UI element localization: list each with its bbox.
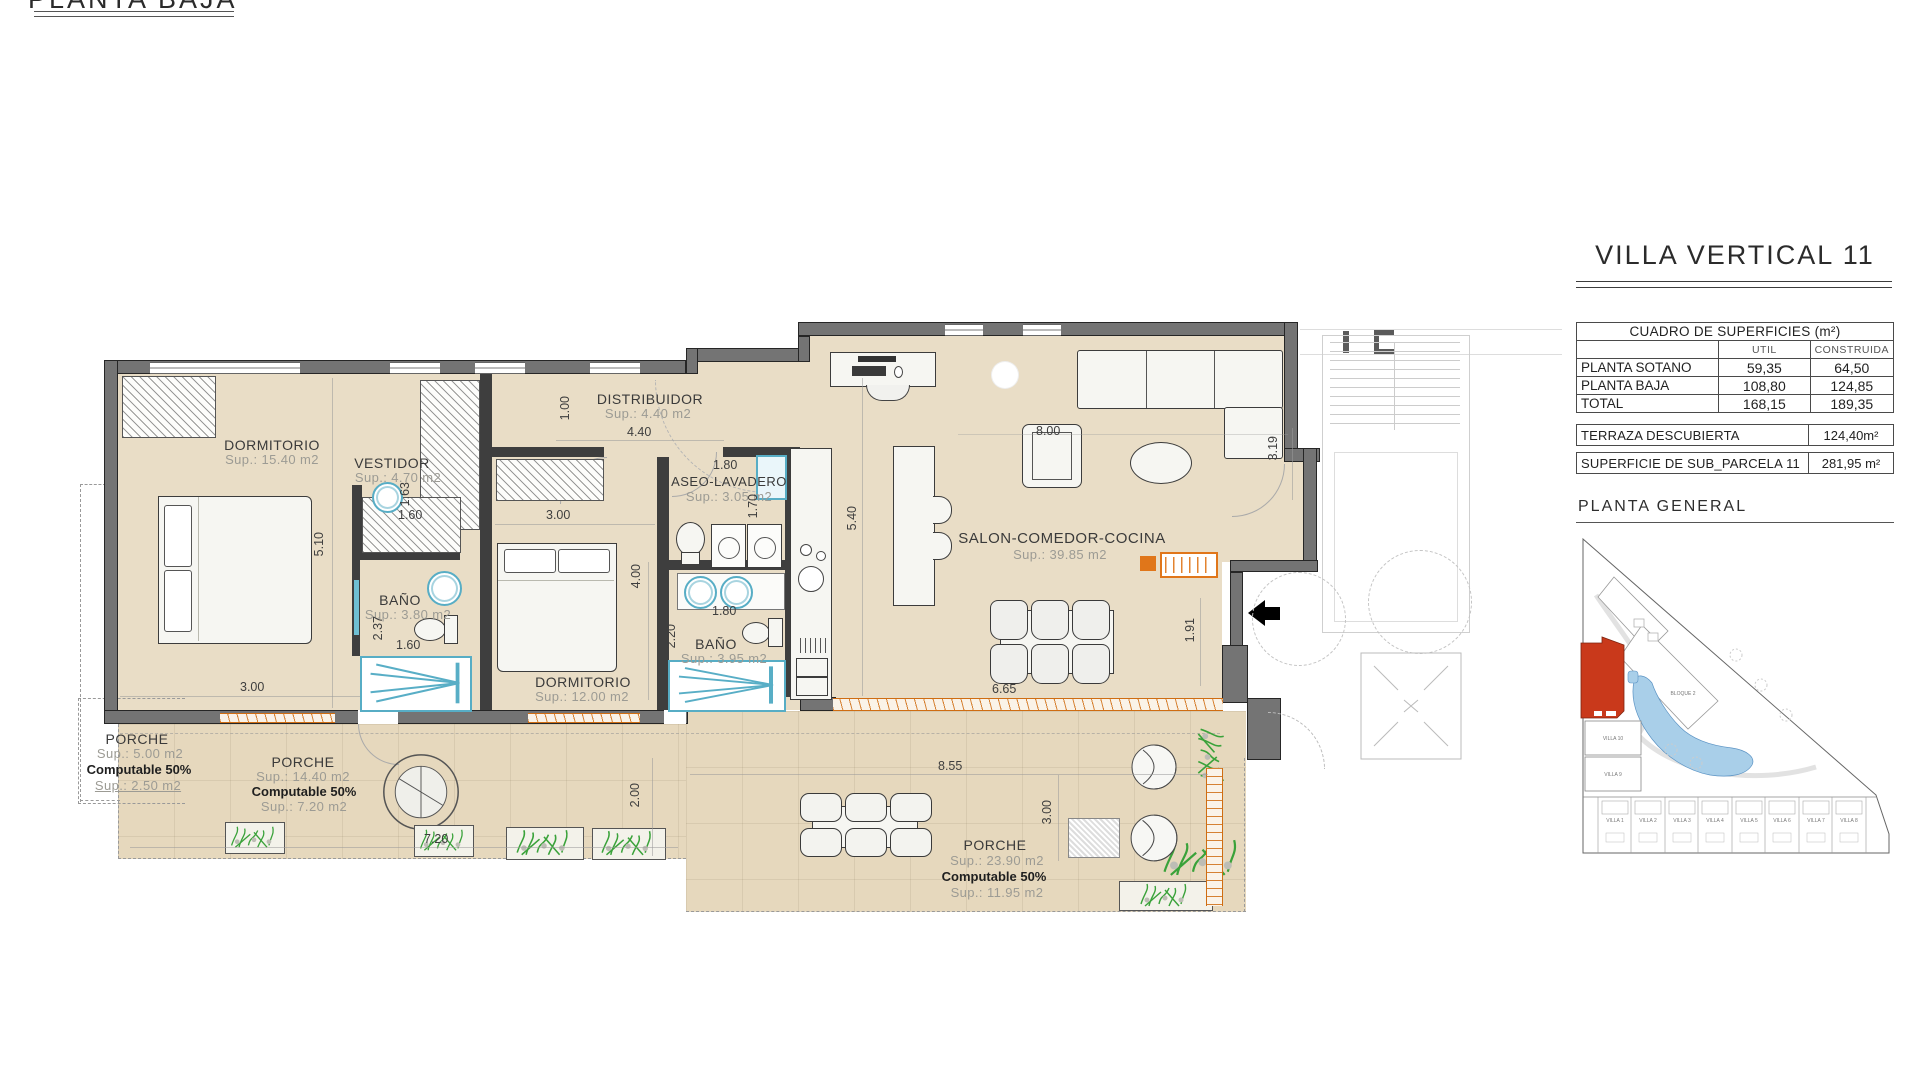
site-label-villa: VILLA 1 — [1606, 818, 1624, 824]
dimension-label: 8.00 — [1036, 424, 1060, 438]
shower-spray-icon — [671, 663, 781, 707]
window-sill — [833, 698, 1223, 711]
ceiling-light — [992, 362, 1018, 388]
washing-machine — [711, 524, 746, 568]
bed-pillow — [558, 549, 610, 573]
planter — [506, 827, 584, 860]
room-label: BAÑO — [379, 592, 421, 608]
floor-plan: DORMITORIO Sup.: 15.40 m2 VESTIDOR Sup.:… — [0, 0, 1568, 1080]
toilet-cistern — [681, 552, 700, 565]
toilet — [676, 522, 705, 556]
outdoor-chair — [845, 828, 887, 857]
parcela-row: SUPERFICIE DE SUB_PARCELA 11 281,95 m² — [1576, 452, 1894, 474]
bed-pillow — [504, 549, 556, 573]
dimension-label: 1.91 — [1183, 618, 1197, 642]
room-label: PORCHE — [272, 754, 335, 770]
room-area: Sup.: 14.40 m2 — [256, 769, 350, 784]
kitchen-sink-small — [816, 551, 826, 561]
surfaces-row-label: TOTAL — [1577, 395, 1719, 413]
hob — [800, 638, 826, 653]
room-label: ASEO-LAVADERO — [671, 474, 787, 489]
room-area: Sup.: 5.00 m2 — [97, 746, 183, 761]
partition-wall — [480, 374, 492, 710]
wall-segment — [686, 348, 810, 362]
dimension-line — [120, 696, 360, 697]
outdoor-chair — [800, 793, 842, 822]
gate-swing-arc — [1268, 712, 1325, 769]
washbasin — [427, 571, 462, 606]
dimension-line — [495, 524, 655, 525]
site-label-bloque2: BLOQUE 2 — [1670, 691, 1695, 697]
toilet — [742, 622, 770, 644]
surfaces-row-construida: 124,85 — [1810, 377, 1893, 395]
site-plan-title: PLANTA GENERAL — [1578, 498, 1747, 516]
shower-tray — [360, 656, 472, 712]
terraza-value: 124,40m² — [1809, 424, 1894, 446]
surfaces-empty-cell — [1577, 341, 1719, 359]
staircase — [1330, 342, 1460, 430]
window-sill — [528, 713, 640, 723]
shower-tray — [668, 660, 786, 712]
surfaces-row-construida: 64,50 — [1810, 359, 1893, 377]
tree-canopy — [1252, 572, 1346, 666]
surfaces-col-construida: CONSTRUIDA — [1810, 341, 1893, 359]
tree-canopy — [1368, 550, 1472, 654]
dimension-line — [1292, 428, 1293, 500]
sideboard — [1160, 552, 1218, 578]
dimension-label: 1.60 — [396, 638, 420, 652]
dimension-line — [652, 758, 653, 856]
dimension-label: 5.10 — [312, 532, 326, 556]
room-area: Sup.: 4.40 m2 — [605, 406, 691, 421]
planter — [592, 828, 666, 860]
terraza-label: TERRAZA DESCUBIERTA — [1576, 424, 1809, 446]
surfaces-col-util: UTIL — [1719, 341, 1810, 359]
towel-rail — [354, 580, 359, 635]
room-area: Sup.: 39.85 m2 — [1013, 547, 1107, 562]
dimension-label: 5.40 — [845, 506, 859, 530]
site-label-villa: VILLA 2 — [1639, 818, 1657, 824]
window — [590, 362, 640, 374]
staircase-divider — [1394, 342, 1395, 430]
site-label-villa: VILLA 5 — [1740, 818, 1758, 824]
room-area: Sup.: 2.50 m2 — [95, 778, 181, 793]
door-opening — [664, 710, 686, 724]
dimension-label: 4.00 — [629, 564, 643, 588]
wall-segment — [686, 348, 698, 374]
wardrobe — [496, 459, 604, 501]
skylight — [1356, 648, 1468, 766]
terraza-row: TERRAZA DESCUBIERTA 124,40m² — [1576, 424, 1894, 446]
room-area: Sup.: 11.95 m2 — [951, 885, 1044, 900]
lounge-chair — [1128, 742, 1180, 792]
room-label: PORCHE — [106, 731, 169, 747]
dimension-label: 3.19 — [1266, 436, 1280, 460]
outdoor-chair — [890, 828, 932, 857]
planter — [1119, 881, 1213, 911]
room-area: Sup.: 3.95 m2 — [681, 651, 767, 666]
dimension-label: 1.80 — [712, 604, 736, 618]
site-label-villa10: VILLA 10 — [1603, 736, 1624, 742]
shower-spray-icon — [363, 659, 467, 707]
site-plan-map: VILLA 10 VILLA 9 BLOQUE 2 VILLA 1 VILLA … — [1576, 535, 1896, 865]
surfaces-row-util: 59,35 — [1719, 359, 1810, 377]
lounge-chair — [1128, 812, 1180, 864]
wall-segment — [1230, 560, 1318, 572]
dimension-label: 1.60 — [398, 508, 422, 522]
door-opening — [358, 710, 398, 724]
window — [390, 362, 440, 374]
washing-machine — [747, 524, 782, 568]
outdoor-chair — [800, 828, 842, 857]
wall-segment — [104, 360, 118, 724]
partition-wall — [492, 447, 604, 457]
dimension-label: 6.65 — [992, 682, 1016, 696]
dimension-line — [1058, 775, 1059, 861]
site-label-villa: VILLA 4 — [1706, 818, 1724, 824]
surfaces-row-util: 108,80 — [1719, 377, 1810, 395]
dining-chair — [1072, 600, 1110, 640]
dimension-line — [332, 378, 333, 708]
outdoor-chair — [890, 793, 932, 822]
partition-wall — [352, 485, 362, 560]
dining-chair — [1031, 644, 1069, 684]
drawing-sheet: PLANTA BAJA www.alicante-p — [0, 0, 1920, 1080]
toilet-cistern — [768, 618, 783, 647]
dimension-line — [862, 378, 863, 696]
site-label-villa: VILLA 3 — [1673, 818, 1691, 824]
window — [1023, 324, 1061, 336]
room-area: Sup.: 7.20 m2 — [261, 799, 347, 814]
dimension-line — [690, 774, 1208, 775]
hanging-chair — [378, 752, 464, 834]
window-sill — [220, 713, 335, 723]
wall-segment — [798, 336, 810, 362]
kitchen-island — [893, 446, 935, 606]
parcela-value: 281,95 m² — [1809, 452, 1894, 474]
dimension-label: 3.00 — [240, 680, 264, 694]
desk-keyboard — [852, 366, 886, 376]
surfaces-table-title: CUADRO DE SUPERFICIES (m²) — [1577, 323, 1894, 341]
dimension-label: 2.37 — [371, 616, 385, 640]
dimension-line — [958, 434, 1288, 435]
bed-fold-line — [198, 497, 199, 641]
site-label-villa: VILLA 8 — [1840, 818, 1858, 824]
dimension-label: 3.00 — [546, 508, 570, 522]
surfaces-row-label: PLANTA SOTANO — [1577, 359, 1719, 377]
room-note: Computable 50% — [942, 869, 1047, 884]
room-note: Computable 50% — [252, 784, 357, 799]
room-label: DORMITORIO — [224, 437, 320, 453]
desk-mouse — [894, 366, 903, 378]
coffee-table — [1130, 442, 1192, 484]
site-label-villa9: VILLA 9 — [1604, 772, 1622, 778]
fireplace — [1140, 556, 1156, 571]
surfaces-row-util: 168,15 — [1719, 395, 1810, 413]
room-label: DISTRIBUIDOR — [597, 391, 703, 407]
dimension-label: 3.00 — [1040, 800, 1054, 824]
dimension-label: 8.55 — [938, 759, 962, 773]
dining-chair — [1031, 600, 1069, 640]
bed-pillow — [164, 570, 192, 632]
porch-overhang-dashed — [120, 733, 1220, 734]
kitchen-drawer — [796, 677, 828, 696]
dimension-line — [556, 440, 724, 441]
outdoor-rug — [1068, 818, 1120, 858]
dining-chair — [1072, 644, 1110, 684]
site-plan-title-underline — [1576, 522, 1894, 523]
room-area: Sup.: 15.40 m2 — [225, 452, 319, 467]
dimension-label: 1.63 — [398, 482, 412, 506]
dimension-label: 1.00 — [558, 396, 572, 420]
site-label-villa: VILLA 7 — [1807, 818, 1825, 824]
dining-chair — [990, 600, 1028, 640]
room-label: DORMITORIO — [535, 674, 631, 690]
parcel-boundary-dashed — [80, 484, 106, 485]
bed-pillow — [164, 505, 192, 567]
outdoor-chair — [845, 793, 887, 822]
dining-chair — [990, 644, 1028, 684]
surfaces-row-label: PLANTA BAJA — [1577, 377, 1719, 395]
room-note: Computable 50% — [87, 762, 192, 777]
bed-fold-line — [498, 580, 614, 581]
wall-segment — [1303, 448, 1317, 572]
highlighted-villa-11 — [1581, 637, 1624, 718]
kitchen-drawer — [796, 658, 828, 677]
room-area: Sup.: 12.00 m2 — [535, 689, 629, 704]
planter — [225, 822, 285, 854]
villa-title-underline — [1576, 281, 1892, 288]
desk-monitor — [858, 356, 896, 362]
dimension-label: 1.70 — [746, 494, 760, 518]
window — [150, 362, 300, 374]
neighbor-line — [1300, 329, 1562, 330]
wall-segment — [1230, 572, 1243, 648]
wall-segment — [1222, 645, 1248, 703]
site-label-villa: VILLA 6 — [1773, 818, 1791, 824]
wardrobe — [122, 376, 216, 438]
room-label: VESTIDOR — [354, 455, 430, 471]
dimension-label: 2.00 — [628, 783, 642, 807]
dimension-label: 2.20 — [664, 624, 678, 648]
villa-title: VILLA VERTICAL 11 — [1578, 240, 1892, 271]
window — [475, 362, 525, 374]
dimension-label: 7.20 — [424, 832, 448, 846]
surfaces-row-construida: 189,35 — [1810, 395, 1893, 413]
window — [945, 324, 983, 336]
room-label: BAÑO — [695, 636, 737, 652]
kitchen-sink — [798, 566, 824, 592]
pergola-strip — [1206, 768, 1223, 906]
dimension-label: 4.40 — [627, 425, 651, 439]
kitchen-sink-small — [800, 544, 812, 556]
wall-segment — [1284, 322, 1298, 462]
room-label: SALON-COMEDOR-COCINA — [958, 530, 1166, 547]
dimension-label: 1.80 — [713, 458, 737, 472]
room-area: Sup.: 23.90 m2 — [950, 853, 1044, 868]
dimension-line — [1200, 598, 1201, 686]
parcela-label: SUPERFICIE DE SUB_PARCELA 11 — [1576, 452, 1809, 474]
surfaces-table: CUADRO DE SUPERFICIES (m²) UTIL CONSTRUI… — [1576, 322, 1894, 413]
room-label: PORCHE — [964, 837, 1027, 853]
dimension-line — [648, 562, 649, 700]
sofa — [1077, 350, 1283, 409]
dimension-line — [130, 847, 678, 848]
